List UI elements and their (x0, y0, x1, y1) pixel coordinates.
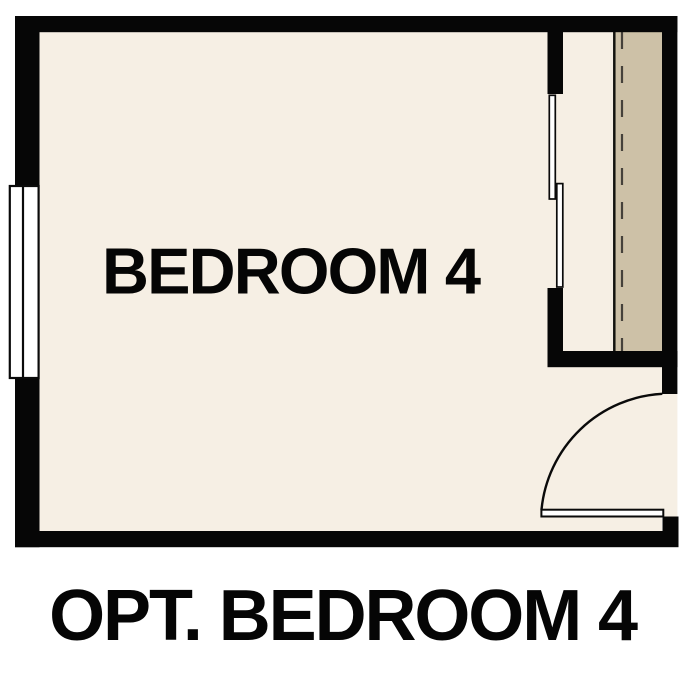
svg-text:OPT. BEDROOM 4: OPT. BEDROOM 4 (49, 576, 638, 656)
svg-text:BEDROOM 4: BEDROOM 4 (102, 235, 481, 308)
